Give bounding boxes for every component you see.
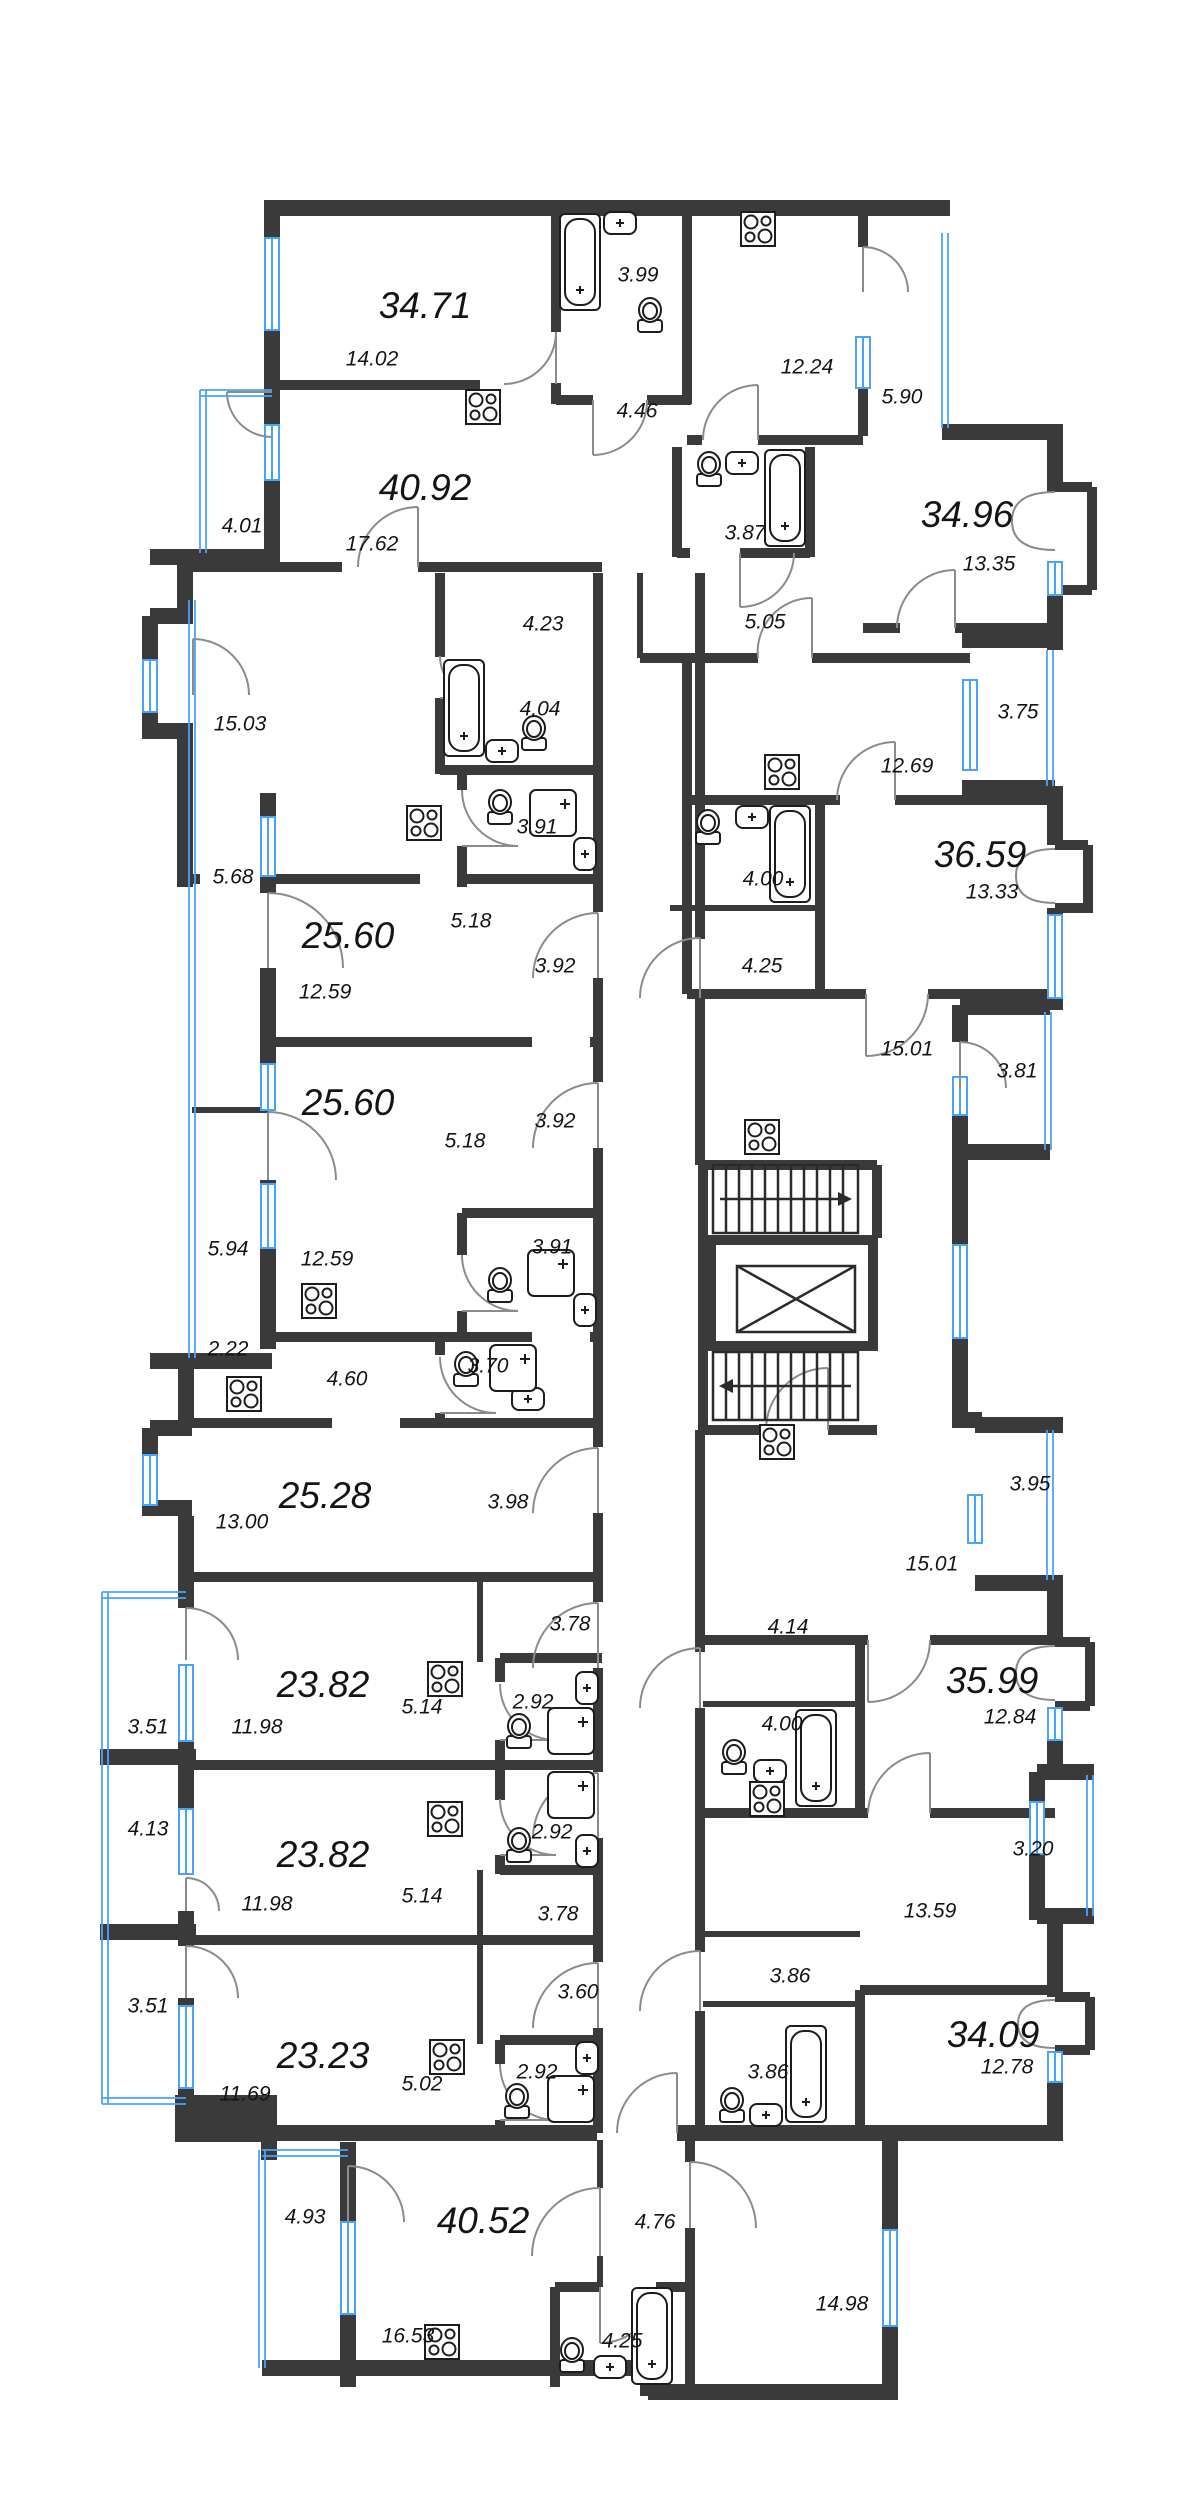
window [179,2006,193,2088]
window [179,1665,193,1741]
room-area-label: 2.92 [531,1821,573,1844]
room-area-label: 3.98 [488,1491,529,1514]
room-area-label: 3.99 [618,264,659,287]
room-area-label: 4.60 [327,1368,368,1391]
window [261,1184,275,1248]
room-area-label: 4.46 [617,400,658,423]
window [143,660,157,712]
room-area-label: 12.59 [299,981,352,1004]
window [341,2222,355,2314]
room-area-label: 4.93 [285,2206,326,2229]
apartment-area-label: 23.82 [276,1834,370,1875]
room-area-label: 5.14 [402,1696,443,1719]
room-area-label: 13.33 [966,881,1019,904]
window [261,1064,275,1110]
window [963,680,977,770]
room-area-label: 12.78 [981,2056,1034,2079]
apartment-area-label: 25.60 [301,915,395,956]
elevator [711,1240,873,1346]
window [1048,1708,1062,1740]
room-area-label: 3.87 [725,522,767,545]
room-area-label: 4.04 [520,698,561,721]
apartment-area-label: 23.82 [276,1664,370,1705]
window [883,2230,897,2326]
room-area-label: 11.98 [232,1716,283,1739]
window [1048,915,1062,998]
door-arc [186,1946,238,1998]
room-area-label: 4.00 [743,868,784,891]
room-area-label: 4.76 [635,2211,676,2234]
door-arc [186,1608,238,1660]
window [261,817,275,876]
apartment-area-label: 35.99 [946,1660,1039,1701]
room-area-label: 3.78 [550,1613,591,1636]
room-area-label: 5.18 [451,910,492,933]
room-area-label: 4.25 [602,2330,643,2353]
door-arc [640,1648,700,1708]
door-arc [740,553,794,607]
window [968,1495,982,1543]
room-area-label: 2.92 [516,2061,558,2084]
window [953,1245,967,1338]
room-area-label: 13.35 [963,553,1016,576]
room-area-label: 3.92 [535,1110,576,1133]
window [179,1809,193,1874]
room-area-label: 3.75 [998,701,1039,724]
window [1048,562,1062,595]
room-area-label: 3.95 [1010,1473,1051,1496]
door-arc [193,639,249,695]
room-area-label: 16.53 [382,2325,435,2348]
apartment-area-label: 34.71 [379,285,472,326]
apartment-area-label: 34.96 [921,494,1014,535]
room-area-label: 17.62 [346,533,399,556]
room-area-label: 15.01 [881,1038,934,1061]
room-area-label: 4.23 [523,613,564,636]
room-area-label: 3.91 [532,1236,573,1259]
room-area-label: 3.81 [997,1060,1038,1083]
room-area-label: 4.01 [222,515,263,538]
room-area-label: 11.69 [220,2083,271,2106]
apartment-area-label: 40.52 [437,2200,530,2241]
apartment-area-label: 23.23 [276,2035,370,2076]
room-area-label: 15.03 [214,713,267,736]
door-arc [504,332,556,384]
room-area-label: 2.22 [207,1338,249,1361]
room-area-label: 3.70 [468,1355,509,1378]
room-area-label: 3.51 [128,1995,169,2018]
apartment-area-label: 25.28 [278,1475,372,1516]
room-area-label: 13.00 [216,1511,269,1534]
room-area-label: 4.13 [128,1818,169,1841]
room-area-label: 5.05 [745,611,786,634]
room-area-label: 5.94 [208,1238,249,1261]
room-area-label: 4.14 [768,1616,809,1639]
room-area-label: 12.84 [984,1706,1037,1729]
room-area-label: 5.14 [402,1885,443,1908]
floor-plan-page: 34.7140.9225.6025.6025.2823.8223.8223.23… [0,0,1190,2500]
room-area-label: 3.86 [770,1965,811,1988]
room-area-label: 3.91 [517,816,558,839]
window [143,1455,157,1505]
apartment-area-label: 36.59 [934,834,1027,875]
room-area-label: 14.02 [346,348,399,371]
room-area-label: 12.59 [301,1248,354,1271]
room-area-label: 3.78 [538,1903,579,1926]
room-area-label: 5.18 [445,1130,486,1153]
room-area-label: 15.01 [906,1553,959,1576]
room-area-label: 3.20 [1013,1838,1054,1861]
door-arc [1012,492,1055,550]
floor-plan: 34.7140.9225.6025.6025.2823.8223.8223.23… [0,0,1190,2500]
door-arc [617,2073,677,2133]
room-area-label: 12.69 [881,755,934,778]
door-arc [868,1753,930,1813]
room-area-label: 2.92 [512,1691,554,1714]
room-area-label: 5.02 [402,2073,443,2096]
door-arc [868,1640,930,1702]
room-area-label: 14.98 [816,2293,869,2316]
room-area-label: 4.25 [742,955,783,978]
room-area-label: 5.90 [882,386,923,409]
room-area-label: 5.68 [213,866,254,889]
window [265,425,279,480]
room-area-label: 3.51 [128,1716,169,1739]
room-area-label: 3.86 [748,2061,789,2084]
room-area-label: 3.60 [558,1981,599,2004]
window [1048,2052,1062,2082]
door-arc [533,1448,598,1513]
door-arc [703,385,758,440]
window [265,238,279,330]
door-arc [348,2166,404,2222]
window [856,337,870,388]
room-area-label: 3.92 [535,955,576,978]
door-arc [897,570,955,628]
door-arc [532,2188,600,2256]
door-arc [863,247,908,292]
room-area-label: 13.59 [904,1900,957,1923]
apartment-area-label: 40.92 [379,467,472,508]
apartment-area-label: 34.09 [947,2014,1040,2055]
apartment-area-label: 25.60 [301,1082,395,1123]
door-arc [690,2162,756,2228]
room-area-label: 11.98 [242,1893,293,1916]
door-arc [640,1951,700,2011]
room-area-label: 4.00 [762,1713,803,1736]
door-arc [186,1878,219,1911]
room-area-label: 12.24 [781,356,834,379]
